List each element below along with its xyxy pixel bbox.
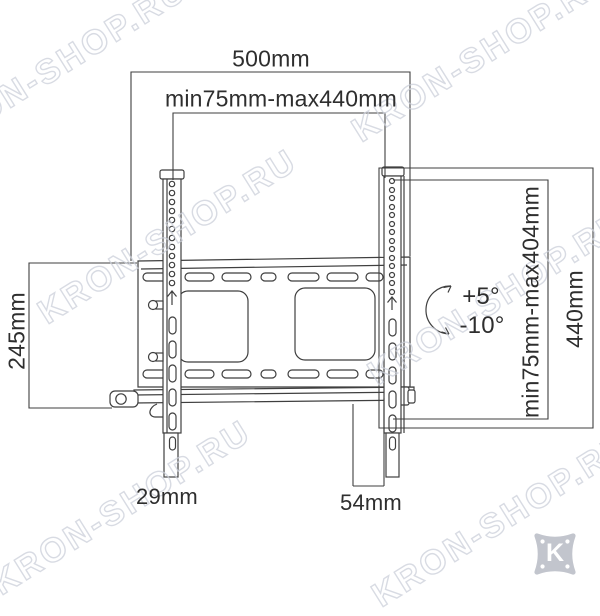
wall-plate xyxy=(110,257,415,407)
diagram-canvas: { "watermark": { "text": "KRON-SHOP.RU" … xyxy=(0,0,600,600)
dim-max-depth-label: 54mm xyxy=(340,490,402,516)
side-bolts xyxy=(149,301,164,362)
right-tv-bracket xyxy=(382,167,404,477)
tilt-arrow-icon xyxy=(426,286,451,334)
dim-vesa-width-line xyxy=(173,113,385,180)
tv-mount-dimension-diagram: KRON-SHOP.RU KRON-SHOP.RU KRON-SHOP.RU K… xyxy=(0,0,600,600)
dim-vesa-width-label: min75mm-max440mm xyxy=(165,86,397,113)
wall-foot xyxy=(110,391,138,407)
left-tv-bracket xyxy=(149,170,185,477)
dim-min-depth-label: 29mm xyxy=(136,484,198,510)
tilt-down-label: -10° xyxy=(459,312,504,340)
brand-logo: K xyxy=(532,531,578,577)
tilt-up-label: +5° xyxy=(462,283,500,311)
dim-vesa-height-label: min75mm-max404mm xyxy=(518,186,545,418)
dim-total-width-label: 500mm xyxy=(232,46,310,73)
dim-bracket-height-label: 440mm xyxy=(562,270,589,348)
brand-logo-letter: K xyxy=(532,531,578,577)
dim-245mm-line xyxy=(29,263,137,408)
dim-plate-height-label: 245mm xyxy=(4,292,31,370)
